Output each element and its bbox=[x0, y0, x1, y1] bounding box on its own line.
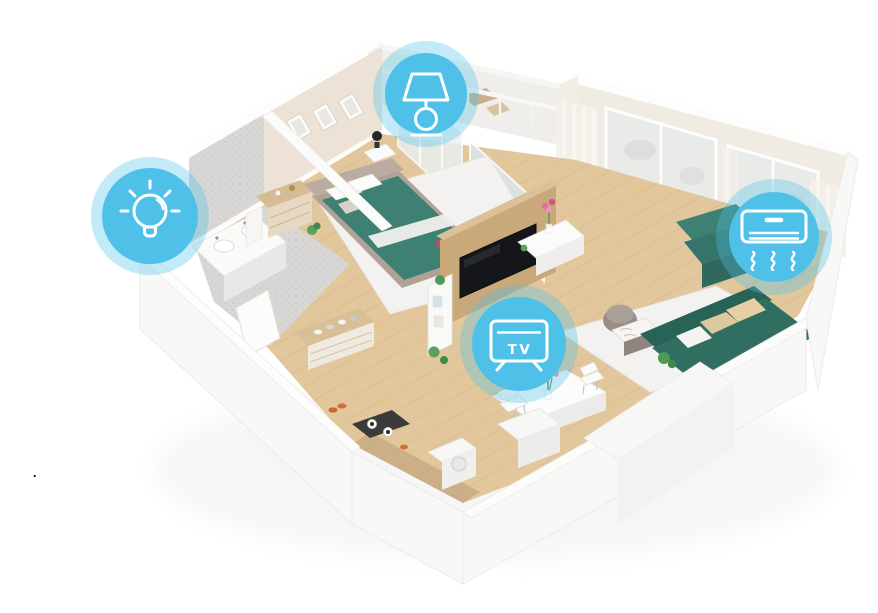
pouf-top bbox=[607, 305, 634, 324]
tv-icon-label: TV bbox=[508, 342, 533, 358]
bedside-lamp bbox=[372, 131, 382, 141]
illustration-canvas: TV . bbox=[0, 0, 878, 613]
console-plant bbox=[521, 245, 528, 252]
stray-dot: . bbox=[32, 464, 37, 481]
hotspot-lamp[interactable] bbox=[373, 41, 479, 147]
hotspot-circle bbox=[385, 53, 467, 135]
hotspot-tv[interactable]: TV bbox=[460, 285, 578, 403]
sofa-plant bbox=[658, 352, 670, 364]
smart-home-floor-plan: TV bbox=[0, 0, 878, 613]
floor-plant bbox=[429, 347, 440, 358]
tower-plant bbox=[435, 275, 445, 285]
decor-bowl bbox=[289, 185, 295, 191]
hotspot-ac[interactable] bbox=[716, 179, 832, 295]
hotspot-light[interactable] bbox=[91, 157, 209, 275]
